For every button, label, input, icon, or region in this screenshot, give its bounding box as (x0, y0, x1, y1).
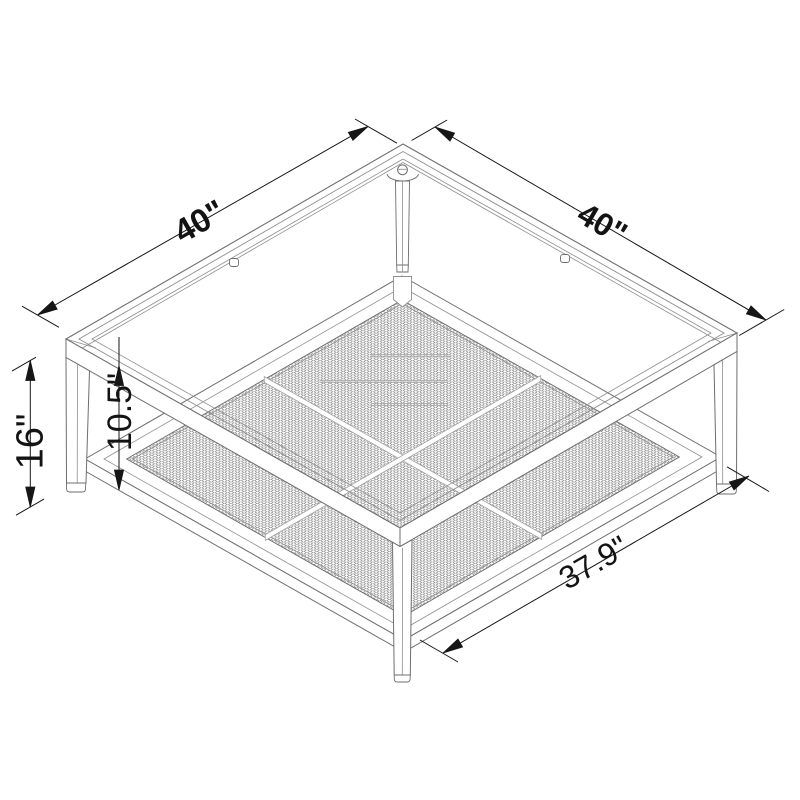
svg-text:10.5": 10.5" (101, 373, 139, 451)
svg-text:16": 16" (9, 414, 51, 470)
